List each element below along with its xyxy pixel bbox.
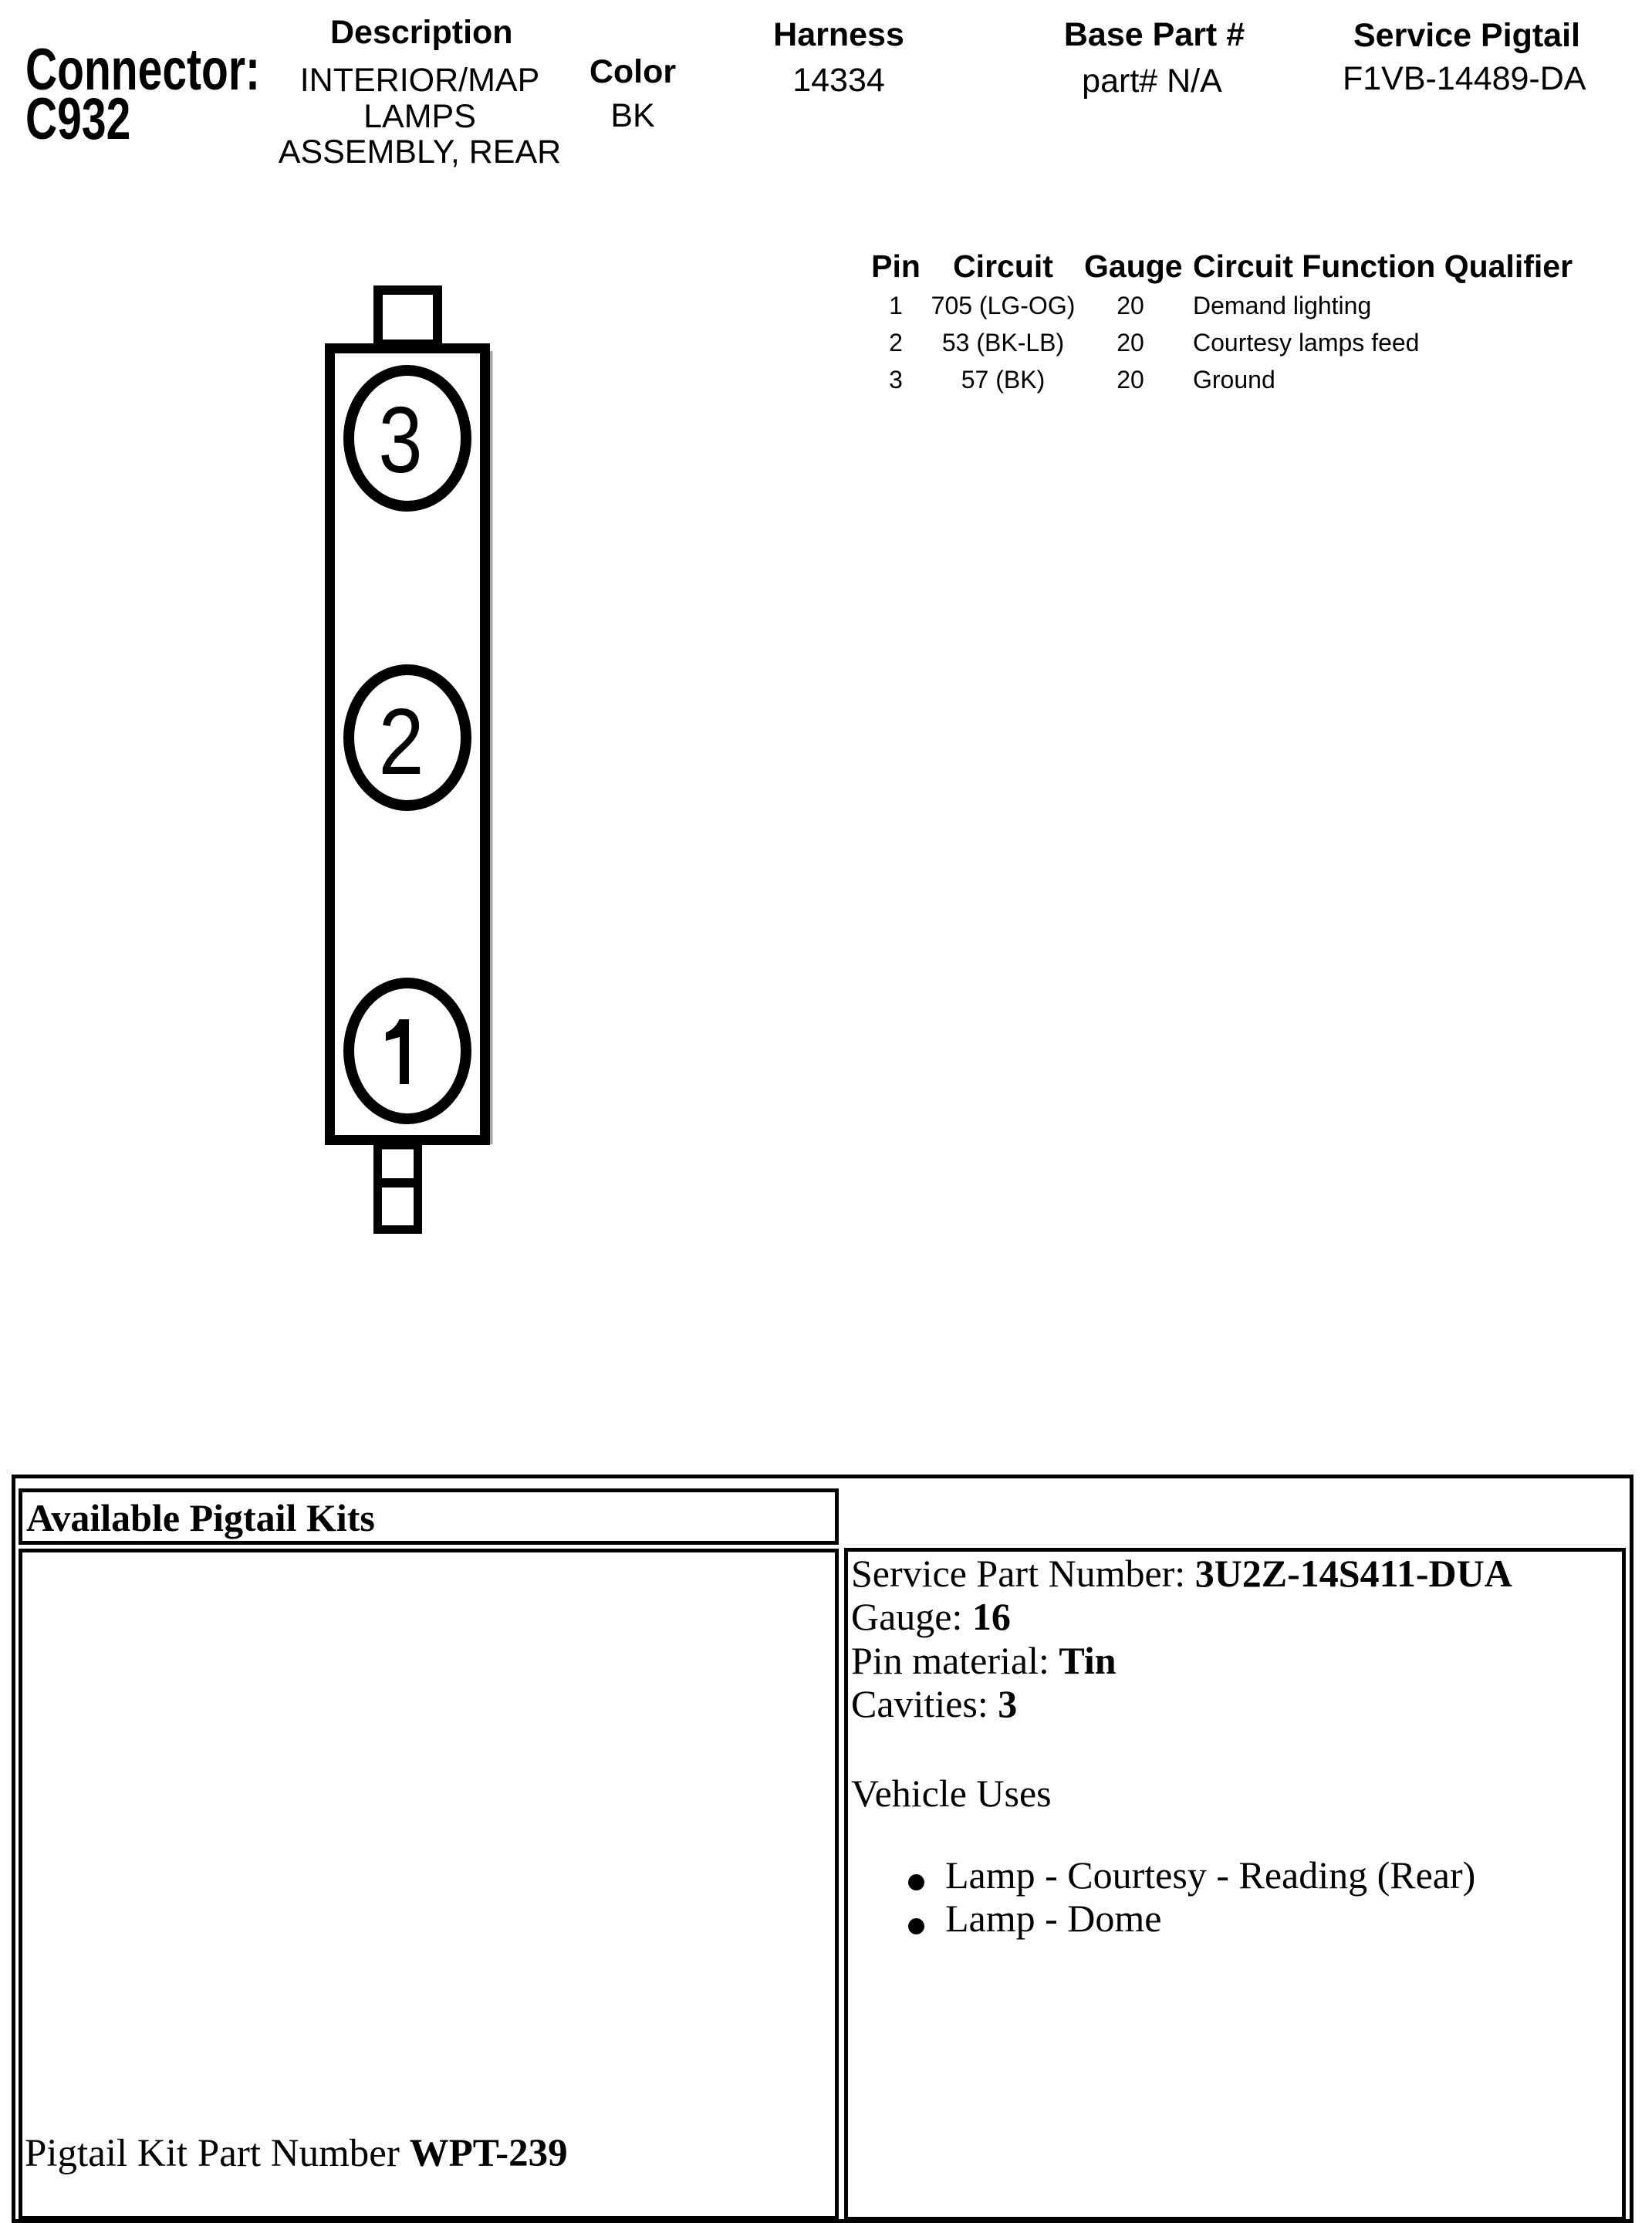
svg-text:3: 3: [379, 387, 423, 492]
svg-text:2: 2: [378, 689, 424, 795]
